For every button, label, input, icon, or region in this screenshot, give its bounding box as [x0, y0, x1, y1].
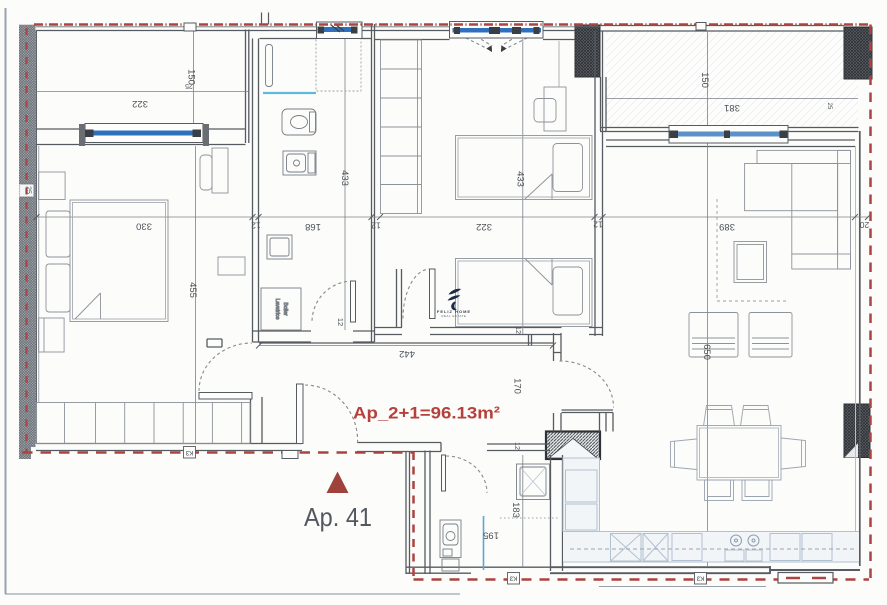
svg-text:442: 442 [399, 348, 415, 359]
svg-text:Ap. 41: Ap. 41 [304, 502, 372, 532]
svg-text:Lavatrice: Lavatrice [274, 298, 280, 319]
svg-text:433: 433 [515, 171, 526, 187]
svg-text:150: 150 [699, 72, 710, 88]
svg-text:170: 170 [512, 378, 523, 394]
svg-text:322: 322 [476, 221, 492, 232]
svg-text:650: 650 [701, 344, 712, 360]
svg-text:K3: K3 [185, 449, 193, 455]
svg-text:Boiler: Boiler [282, 302, 288, 316]
svg-text:168: 168 [305, 221, 321, 232]
svg-text:REAL ESTATE: REAL ESTATE [441, 314, 466, 318]
svg-text:455: 455 [187, 282, 198, 298]
svg-text:322: 322 [132, 98, 148, 109]
svg-text:183: 183 [510, 502, 521, 518]
svg-text:433: 433 [339, 170, 350, 186]
svg-text:12: 12 [336, 318, 345, 326]
svg-text:25: 25 [25, 186, 32, 194]
svg-text:381: 381 [724, 102, 740, 113]
svg-text:12: 12 [371, 221, 381, 231]
svg-text:12: 12 [513, 442, 520, 450]
svg-text:12: 12 [593, 220, 603, 230]
svg-text:195: 195 [483, 530, 499, 541]
svg-text:389: 389 [719, 221, 735, 232]
svg-text:Ap_2+1=96.13m²: Ap_2+1=96.13m² [353, 404, 500, 423]
svg-text:330: 330 [136, 221, 152, 232]
svg-text:K3: K3 [696, 575, 704, 581]
svg-text:25: 25 [826, 103, 832, 110]
svg-text:12: 12 [251, 221, 261, 231]
svg-text:K3: K3 [509, 575, 517, 581]
svg-text:12: 12 [514, 326, 521, 334]
svg-text:20: 20 [860, 220, 870, 230]
svg-text:25: 25 [185, 82, 193, 89]
